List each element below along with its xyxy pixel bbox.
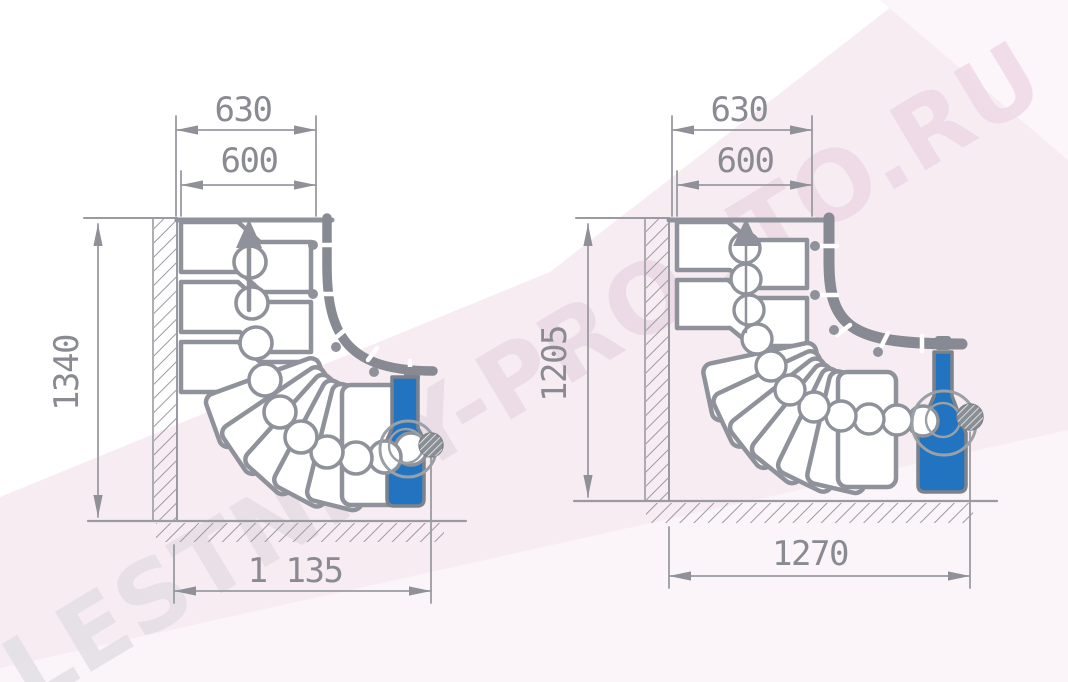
module-circle — [882, 405, 912, 435]
baluster-dot — [829, 325, 839, 335]
baluster-dot — [308, 240, 318, 250]
module-circle — [240, 327, 272, 359]
floor-hatch — [156, 523, 444, 542]
dim-label-top-outer: 630 — [711, 90, 768, 130]
dim-label-top-inner: 600 — [717, 141, 774, 181]
floor-hatch — [646, 503, 973, 523]
dim-label-bottom: 1 135 — [248, 551, 343, 591]
module-circle — [369, 441, 401, 473]
baluster-dot — [369, 367, 379, 377]
module-circle — [756, 351, 786, 381]
module-circle — [236, 287, 268, 319]
wall-hatch — [154, 219, 177, 521]
pole-hatch — [957, 404, 983, 430]
dim-label-top-inner: 600 — [221, 141, 278, 181]
module-circle — [854, 404, 884, 434]
dim-label-top-outer: 630 — [215, 90, 272, 130]
dim-label-height: 1340 — [47, 335, 87, 411]
dim-label-height: 1205 — [535, 326, 575, 402]
module-circle — [249, 364, 281, 396]
baluster-dot — [810, 241, 820, 251]
baluster-dot — [308, 289, 318, 299]
dim-label-bottom: 1270 — [772, 534, 848, 574]
baluster-dot — [873, 347, 883, 357]
module-circle — [340, 442, 372, 474]
wall-hatch — [646, 219, 669, 501]
module-circle — [264, 396, 296, 428]
baluster-dot — [331, 342, 341, 352]
staircase-drawing-canvas: LESTNICY-PROSTO.RU 630 600 1340 1 135 — [0, 0, 1068, 682]
staircase-plan-svg: LESTNICY-PROSTO.RU 630 600 1340 1 135 — [0, 0, 1068, 682]
rail-cap — [935, 336, 951, 350]
baluster-dot — [810, 290, 820, 300]
pole-hatch — [419, 433, 443, 457]
module-circle — [734, 295, 764, 325]
